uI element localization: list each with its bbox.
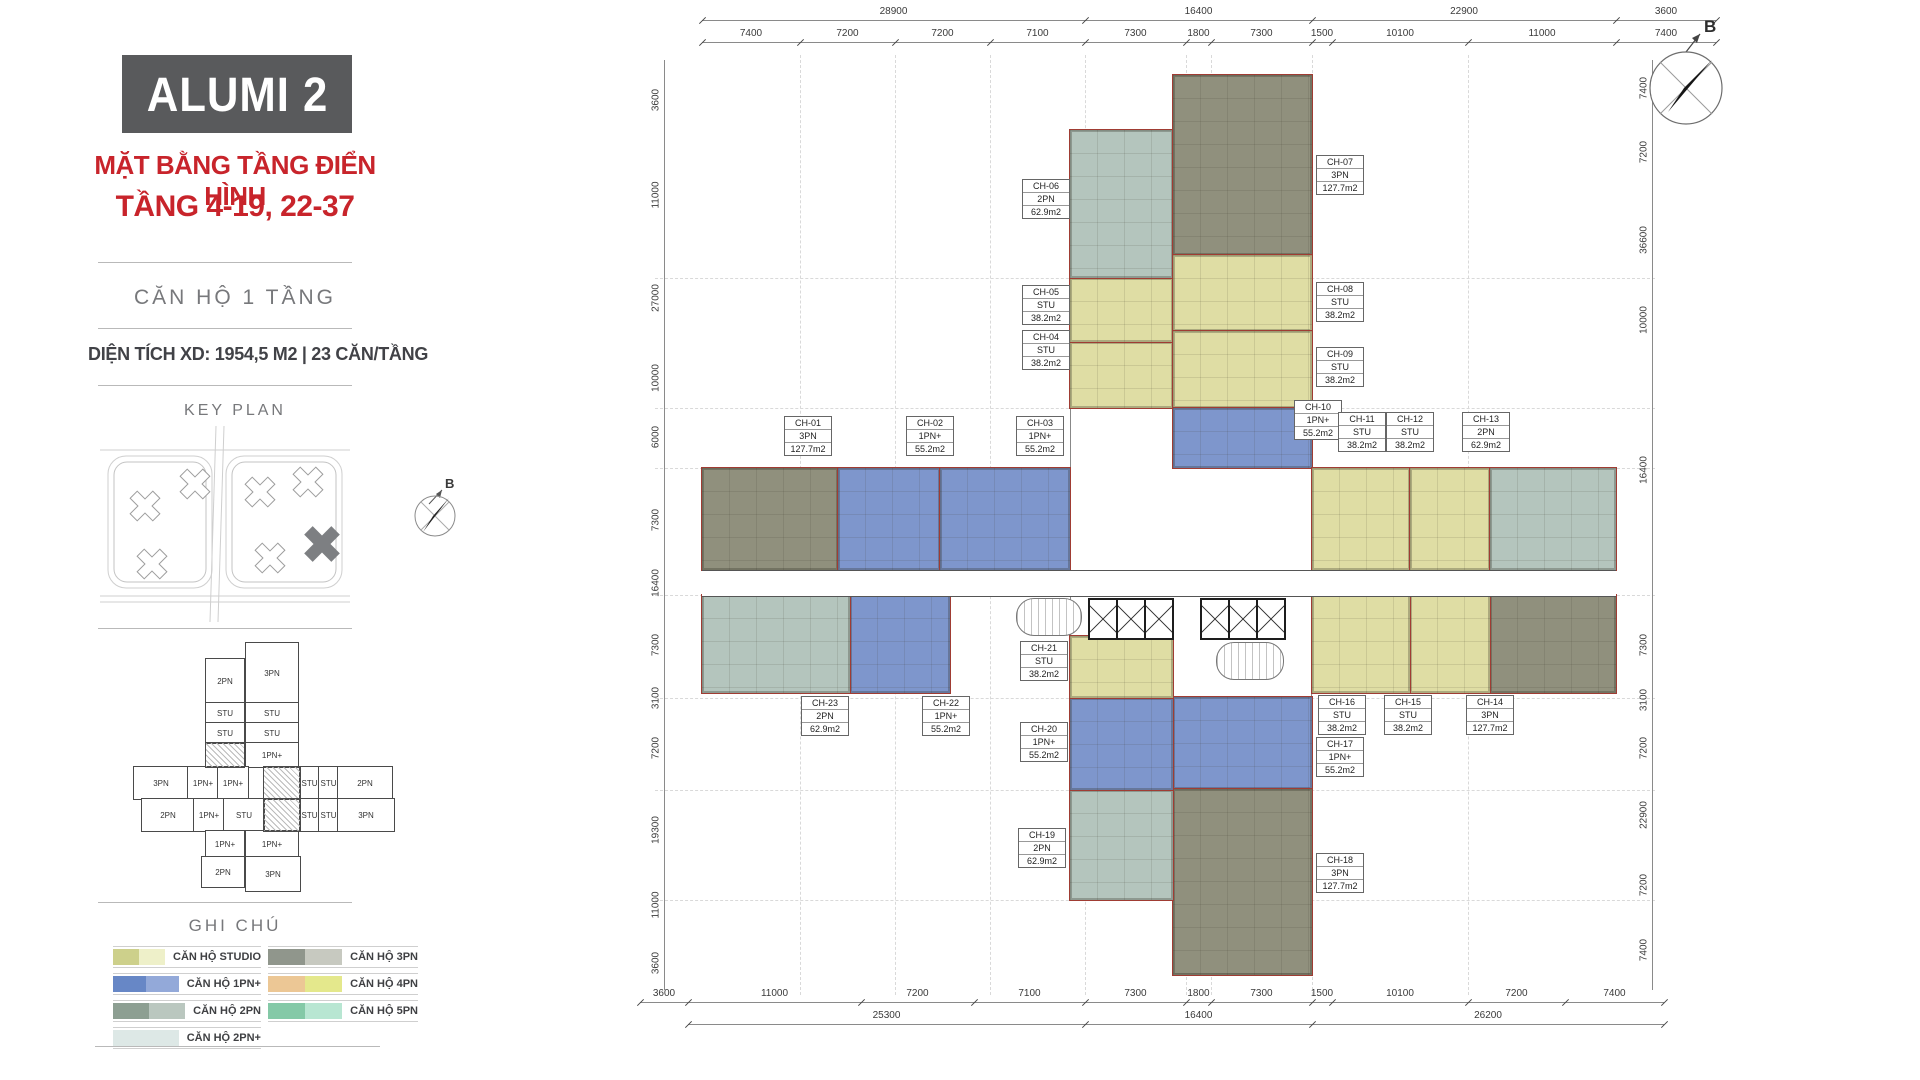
unit-CH-17 [1173, 697, 1312, 789]
dimension-value: 3100 [1639, 689, 1650, 711]
compass-label: B [1704, 17, 1716, 36]
dimension-value: 7400 [740, 28, 762, 39]
unit-label-CH-13: CH-132PN62.9m2 [1462, 412, 1510, 452]
legend-swatch [113, 1003, 149, 1019]
dimension-value: 22900 [1639, 801, 1650, 829]
keyplan-building-outline [129, 541, 174, 586]
dimension-value: 7100 [1018, 988, 1040, 999]
mini-stacking-plan: 2PN3PNSTUSTUSTUSTU1PN+3PN1PN+1PN+STUSTU2… [105, 636, 395, 894]
dimension-value: 7300 [1250, 28, 1272, 39]
unit-label-CH-05: CH-05STU38.2m2 [1022, 285, 1070, 325]
legend-swatch [305, 1003, 342, 1019]
mini-plan-cell: 2PN [205, 658, 245, 704]
unit-CH-18 [1173, 789, 1312, 975]
legend-swatch [149, 1003, 185, 1019]
keyplan-building-outline [285, 459, 330, 504]
mini-plan-core [205, 742, 245, 768]
legend-swatch [268, 949, 305, 965]
dimension-value: 7300 [1124, 988, 1146, 999]
unit-label-CH-02: CH-021PN+55.2m2 [906, 416, 954, 456]
unit-label-CH-15: CH-15STU38.2m2 [1384, 695, 1432, 735]
unit-CH-02 [838, 468, 940, 570]
unit-CH-21 [1070, 636, 1173, 698]
dimension-value: 7200 [1639, 141, 1650, 163]
dimension-value: 1800 [1187, 28, 1209, 39]
legend-swatch [113, 1030, 146, 1046]
unit-CH-15 [1410, 595, 1490, 693]
dimension-value: 6000 [651, 426, 662, 448]
mini-plan-cell: 2PN [201, 856, 245, 888]
legend-swatch [113, 949, 139, 965]
elevator-shaft [1088, 598, 1118, 640]
corridor [702, 570, 1616, 597]
elevator-shaft [1256, 598, 1286, 640]
dimension-value: 7400 [1603, 988, 1625, 999]
unit-CH-10 [1173, 408, 1312, 468]
dimension-value: 11000 [651, 891, 662, 918]
key-plan-map [100, 426, 350, 622]
legend-column-left: CĂN HỘ STUDIOCĂN HỘ 1PN+CĂN HỘ 2PNCĂN HỘ… [113, 946, 261, 1049]
unit-label-CH-01: CH-013PN127.7m2 [784, 416, 832, 456]
mini-plan-cell: 2PN [337, 766, 393, 800]
unit-CH-08 [1173, 255, 1312, 331]
dimension-value: 3600 [651, 89, 662, 111]
dimension-value: 7400 [1639, 939, 1650, 961]
mini-plan-cell: 3PN [245, 856, 301, 892]
mini-plan-core [263, 766, 301, 800]
unit-label-CH-21: CH-21STU38.2m2 [1020, 641, 1068, 681]
dimension-value: 10100 [1386, 988, 1414, 999]
key-plan-compass: B [405, 474, 467, 540]
unit-label-CH-10: CH-101PN+55.2m2 [1294, 400, 1342, 440]
unit-label-CH-12: CH-12STU38.2m2 [1386, 412, 1434, 452]
legend-label: CĂN HỘ 2PN+ [187, 1032, 261, 1044]
legend-label: CĂN HỘ 1PN+ [187, 978, 261, 990]
unit-label-CH-11: CH-11STU38.2m2 [1338, 412, 1386, 452]
legend-swatch [113, 976, 146, 992]
legend-swatch [268, 1003, 305, 1019]
unit-CH-09 [1173, 331, 1312, 408]
compass-needle [423, 498, 449, 532]
keyplan-building-outline [122, 483, 167, 528]
legend-column-right: CĂN HỘ 3PNCĂN HỘ 4PNCĂN HỘ 5PN [268, 946, 418, 1022]
dimension-value: 7300 [651, 634, 662, 656]
legend-item-right-1: CĂN HỘ 4PN [268, 973, 418, 995]
unit-label-CH-16: CH-16STU38.2m2 [1318, 695, 1366, 735]
dimension-value: 7200 [836, 28, 858, 39]
legend-label: CĂN HỘ 5PN [350, 1005, 418, 1017]
mini-plan-cell: STU [318, 766, 339, 800]
mini-plan-cell: 1PN+ [217, 766, 249, 800]
divider [98, 262, 352, 263]
mini-plan-cell: STU [318, 798, 339, 832]
unit-label-CH-04: CH-04STU38.2m2 [1022, 330, 1070, 370]
stair-core [1216, 642, 1284, 680]
dimension-value: 11000 [651, 181, 662, 208]
mini-plan-cell: 1PN+ [245, 742, 299, 768]
unit-CH-12 [1410, 468, 1490, 570]
unit-label-CH-09: CH-09STU38.2m2 [1316, 347, 1364, 387]
unit-label-CH-17: CH-171PN+55.2m2 [1316, 737, 1364, 777]
dimension-value: 7200 [1505, 988, 1527, 999]
unit-CH-13 [1490, 468, 1616, 570]
mini-plan-cell: 2PN [141, 798, 195, 832]
dimension-value: 1500 [1311, 28, 1333, 39]
floor-plan-page: ALUMI 2 MẶT BẰNG TẦNG ĐIỂN HÌNH TẦNG 4-1… [0, 0, 1920, 1080]
dimension-value: 26200 [1474, 1010, 1502, 1021]
unit-CH-05 [1070, 278, 1173, 342]
dimension-value: 11000 [761, 988, 788, 999]
dimension-value: 11000 [1528, 28, 1555, 39]
legend-label: CĂN HỘ STUDIO [173, 951, 261, 963]
divider [95, 1046, 380, 1047]
dimension-value: 19300 [651, 816, 662, 844]
dimension-value: 1800 [1187, 988, 1209, 999]
dimension-value: 27000 [651, 284, 662, 312]
mini-plan-cell: STU [223, 798, 265, 832]
legend-swatch [305, 976, 342, 992]
area-stats: DIỆN TÍCH XD: 1954,5 M2 | 23 CĂN/TẦNG [88, 344, 382, 365]
unit-CH-16 [1312, 595, 1410, 693]
dimension-value: 16400 [1639, 456, 1650, 484]
divider [98, 628, 352, 629]
legend-item-right-2: CĂN HỘ 5PN [268, 1000, 418, 1022]
dimension-value: 7200 [931, 28, 953, 39]
dimension-value: 10100 [1386, 28, 1414, 39]
dimension-value: 7200 [906, 988, 928, 999]
unit-label-CH-23: CH-232PN62.9m2 [801, 696, 849, 736]
dimension-value: 7300 [1250, 988, 1272, 999]
north-compass: B [1638, 6, 1738, 136]
unit-CH-14 [1490, 595, 1616, 693]
unit-label-CH-20: CH-201PN+55.2m2 [1020, 722, 1068, 762]
unit-CH-22 [850, 595, 950, 693]
legend-swatch [146, 976, 179, 992]
legend-item-left-1: CĂN HỘ 1PN+ [113, 973, 261, 995]
dimension-value: 7100 [1026, 28, 1048, 39]
unit-CH-04 [1070, 342, 1173, 408]
section-label: CĂN HỘ 1 TẦNG [90, 286, 380, 310]
dimension-value: 10000 [651, 364, 662, 392]
dimension-value: 16400 [651, 569, 662, 597]
divider [98, 328, 352, 329]
mini-plan-cell: 3PN [245, 642, 299, 704]
dimension-value: 16400 [1185, 6, 1213, 17]
mini-plan-cell: 1PN+ [245, 830, 299, 858]
legend-label: CĂN HỘ 2PN [193, 1005, 261, 1017]
divider [98, 385, 352, 386]
unit-CH-03 [940, 468, 1070, 570]
mini-plan-cell: STU [205, 722, 245, 744]
mini-plan-cell: 3PN [133, 766, 189, 800]
dimension-value: 7200 [1639, 874, 1650, 896]
divider [98, 902, 352, 903]
project-title: ALUMI 2 [146, 66, 327, 123]
mini-plan-cell: STU [299, 798, 320, 832]
dimension-value: 25300 [873, 1010, 901, 1021]
elevator-shaft [1144, 598, 1174, 640]
dimension-value: 36600 [1639, 226, 1650, 254]
legend-label: CĂN HỘ 4PN [350, 978, 418, 990]
legend-swatch [146, 1030, 179, 1046]
mini-plan-cell: STU [245, 722, 299, 744]
mini-plan-cell: 1PN+ [187, 766, 219, 800]
unit-CH-20 [1070, 698, 1173, 790]
dimension-value: 22900 [1450, 6, 1478, 17]
legend-swatch [305, 949, 342, 965]
unit-label-CH-14: CH-143PN127.7m2 [1466, 695, 1514, 735]
mini-plan-core [263, 798, 301, 832]
dimension-value: 1500 [1311, 988, 1333, 999]
unit-label-CH-22: CH-221PN+55.2m2 [922, 696, 970, 736]
legend-item-right-0: CĂN HỘ 3PN [268, 946, 418, 968]
mini-plan-cell: STU [245, 702, 299, 724]
unit-label-CH-06: CH-062PN62.9m2 [1022, 179, 1070, 219]
unit-label-CH-19: CH-192PN62.9m2 [1018, 828, 1066, 868]
elevator-shaft [1116, 598, 1146, 640]
project-title-box: ALUMI 2 [122, 55, 352, 133]
dimension-value: 3100 [651, 687, 662, 709]
dimension-value: 7300 [1124, 28, 1146, 39]
keyplan-building-outline [237, 469, 282, 514]
dimension-value: 7200 [1639, 737, 1650, 759]
key-plan-title: KEY PLAN [90, 402, 380, 420]
mini-plan-cell: 1PN+ [193, 798, 225, 832]
legend-title: GHI CHÚ [90, 916, 380, 936]
stair-core [1016, 598, 1082, 636]
dimension-value: 16400 [1185, 1010, 1213, 1021]
mini-plan-cell: 3PN [337, 798, 395, 832]
unit-CH-07 [1173, 75, 1312, 255]
legend-label: CĂN HỘ 3PN [350, 951, 418, 963]
legend-item-left-0: CĂN HỘ STUDIO [113, 946, 261, 968]
mini-plan-cell: STU [205, 702, 245, 724]
unit-CH-11 [1312, 468, 1410, 570]
unit-label-CH-07: CH-073PN127.7m2 [1316, 155, 1364, 195]
elevator-shaft [1228, 598, 1258, 640]
unit-CH-23 [702, 595, 850, 693]
dimension-value: 28900 [880, 6, 908, 17]
unit-label-CH-08: CH-08STU38.2m2 [1316, 282, 1364, 322]
unit-label-CH-18: CH-183PN127.7m2 [1316, 853, 1364, 893]
legend-swatch [139, 949, 165, 965]
unit-CH-06 [1070, 130, 1173, 278]
compass-label: B [445, 476, 454, 491]
mini-plan-cell: STU [299, 766, 320, 800]
keyplan-highlighted-building [295, 517, 349, 571]
unit-label-CH-03: CH-031PN+55.2m2 [1016, 416, 1064, 456]
unit-CH-01 [702, 468, 838, 570]
dimension-value: 3600 [651, 952, 662, 974]
unit-CH-19 [1070, 790, 1173, 900]
dimension-value: 7300 [1639, 634, 1650, 656]
legend-item-left-2: CĂN HỘ 2PN [113, 1000, 261, 1022]
plan-subtitle-line2: TẦNG 4-19, 22-37 [90, 190, 380, 224]
dimension-value: 7300 [651, 509, 662, 531]
mini-plan-cell: 1PN+ [205, 830, 245, 858]
dimension-value: 10000 [1639, 306, 1650, 334]
dimension-value: 7200 [651, 737, 662, 759]
keyplan-building-outline [247, 535, 292, 580]
legend-swatch [268, 976, 305, 992]
elevator-shaft [1200, 598, 1230, 640]
